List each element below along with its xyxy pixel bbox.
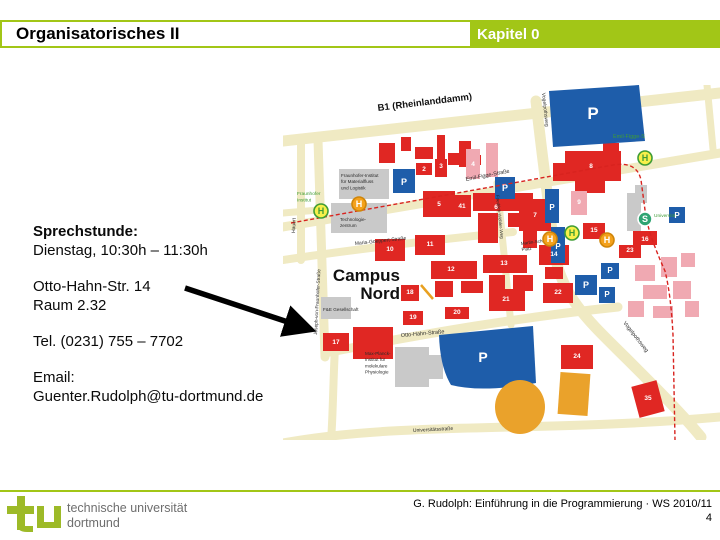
parking-P-mark: P xyxy=(502,183,508,193)
building-number: 19 xyxy=(409,314,417,321)
parking-P-mark: P xyxy=(583,280,589,290)
map-label: Fraunhofer xyxy=(297,191,321,197)
building-number: 9 xyxy=(577,199,581,206)
building-red xyxy=(448,153,460,165)
campus-map: B1 (Rheinlanddamm)Emil-Figge-StraßeEmil-… xyxy=(283,85,720,440)
slide-header: Organisatorisches II Kapitel 0 xyxy=(0,20,720,48)
building-gray xyxy=(429,355,443,379)
credit-line: G. Rudolph: Einführung in die Programmie… xyxy=(413,497,712,511)
building-number: 12 xyxy=(447,266,455,273)
map-label: Fraunhofer-Institut xyxy=(341,173,379,178)
parking-P-mark: P xyxy=(607,266,613,275)
building-pink xyxy=(661,257,677,277)
building-red xyxy=(545,267,563,279)
stop-letter: H xyxy=(547,234,554,244)
parking-P-mark: P xyxy=(674,211,680,220)
building-red xyxy=(603,143,619,153)
building-number: 5 xyxy=(437,201,441,208)
sports-field xyxy=(558,372,591,416)
map-label: Hauert xyxy=(291,217,298,233)
building-number: 24 xyxy=(573,353,581,360)
map-label: molekulare xyxy=(365,363,388,368)
slide: Organisatorisches II Kapitel 0 Sprechstu… xyxy=(0,0,720,540)
stop-letter: H xyxy=(569,228,576,238)
parking-P-mark: P xyxy=(401,177,407,187)
building-red xyxy=(461,281,483,293)
map-label: Emil-Figge-S xyxy=(613,134,645,140)
building-number: 18 xyxy=(406,289,414,296)
logo-text: technische universität dortmund xyxy=(67,501,187,531)
building-number: 41 xyxy=(458,203,466,210)
map-label: Campus xyxy=(333,266,400,285)
footer-divider xyxy=(0,490,720,492)
chapter-label: Kapitel 0 xyxy=(477,26,540,43)
footer-credit: G. Rudolph: Einführung in die Programmie… xyxy=(413,497,712,525)
sports-oval xyxy=(495,380,545,434)
building-number: 15 xyxy=(590,227,598,234)
building-number: 4 xyxy=(471,161,475,168)
parking-P-mark: P xyxy=(478,349,487,365)
map-label: und Logistik xyxy=(341,185,366,190)
pointer-arrow xyxy=(180,278,330,342)
map-label: Institut für xyxy=(365,357,386,362)
building-pink xyxy=(653,306,673,318)
stop-letter: H xyxy=(604,235,611,245)
tu-logo-glyph xyxy=(7,496,61,532)
building-pink xyxy=(643,285,667,299)
building-pink xyxy=(635,265,655,281)
building-gray xyxy=(635,185,647,203)
map-label: Platz xyxy=(521,246,532,252)
building-red xyxy=(401,137,411,151)
building-red xyxy=(565,151,621,181)
building-number: 11 xyxy=(427,241,434,248)
map-label: für Materialfluss xyxy=(341,179,374,184)
map-label: Max-Planck- xyxy=(365,351,391,356)
building-number: 16 xyxy=(641,236,649,243)
building-number: 35 xyxy=(644,395,652,402)
stop-letter: H xyxy=(642,153,649,163)
stop-letter: S xyxy=(642,214,648,224)
building-number: 22 xyxy=(554,289,562,296)
building-red xyxy=(553,163,567,181)
building-number: 17 xyxy=(332,339,340,346)
map-label: Physiologie xyxy=(365,370,389,375)
building-gray xyxy=(395,347,429,387)
building-number: 20 xyxy=(453,309,461,316)
road xyxy=(283,93,720,141)
building-red xyxy=(435,281,453,297)
logo-text-line2: dortmund xyxy=(67,516,187,531)
parking-P-mark: P xyxy=(604,290,610,299)
building-number: 23 xyxy=(626,247,634,254)
building-number: 6 xyxy=(494,204,498,211)
building-number: 13 xyxy=(500,260,508,267)
building-red xyxy=(379,143,395,163)
building-red xyxy=(513,275,533,291)
stop-letter: H xyxy=(356,199,363,209)
parking-P-mark: P xyxy=(587,104,598,123)
building-red xyxy=(437,135,445,159)
map-label: Technologie- xyxy=(340,217,367,222)
building-number: 14 xyxy=(550,251,558,258)
building-number: 21 xyxy=(502,296,510,303)
map-label: zentrum xyxy=(340,223,357,228)
building-number: 2 xyxy=(422,166,426,173)
bus-route-line xyxy=(421,285,433,299)
map-label: Vogelpothsweg xyxy=(621,321,649,354)
title-box: Organisatorisches II xyxy=(0,20,470,48)
parking-P-mark: P xyxy=(549,203,555,212)
map-label: Institut xyxy=(297,197,312,203)
arrow-line xyxy=(185,288,306,328)
building-number: 10 xyxy=(386,246,394,253)
building-pink xyxy=(673,281,691,299)
building-number: 8 xyxy=(589,163,593,170)
map-label: Nord xyxy=(360,284,400,303)
building-pink xyxy=(685,301,699,317)
page-title: Organisatorisches II xyxy=(16,24,179,44)
building-number: 7 xyxy=(533,212,537,219)
building-pink xyxy=(681,253,695,267)
building-red xyxy=(478,213,498,243)
logo-text-line1: technische universität xyxy=(67,501,187,516)
map-label: B1 (Rheinlanddamm) xyxy=(377,91,473,113)
building-number: 3 xyxy=(439,163,443,170)
building-pink xyxy=(628,301,644,317)
building-red xyxy=(415,147,433,159)
stop-letter: H xyxy=(318,206,325,216)
road xyxy=(331,347,335,440)
tu-dortmund-logo xyxy=(7,496,63,538)
chapter-box: Kapitel 0 xyxy=(470,20,720,48)
page-number: 4 xyxy=(413,511,712,525)
